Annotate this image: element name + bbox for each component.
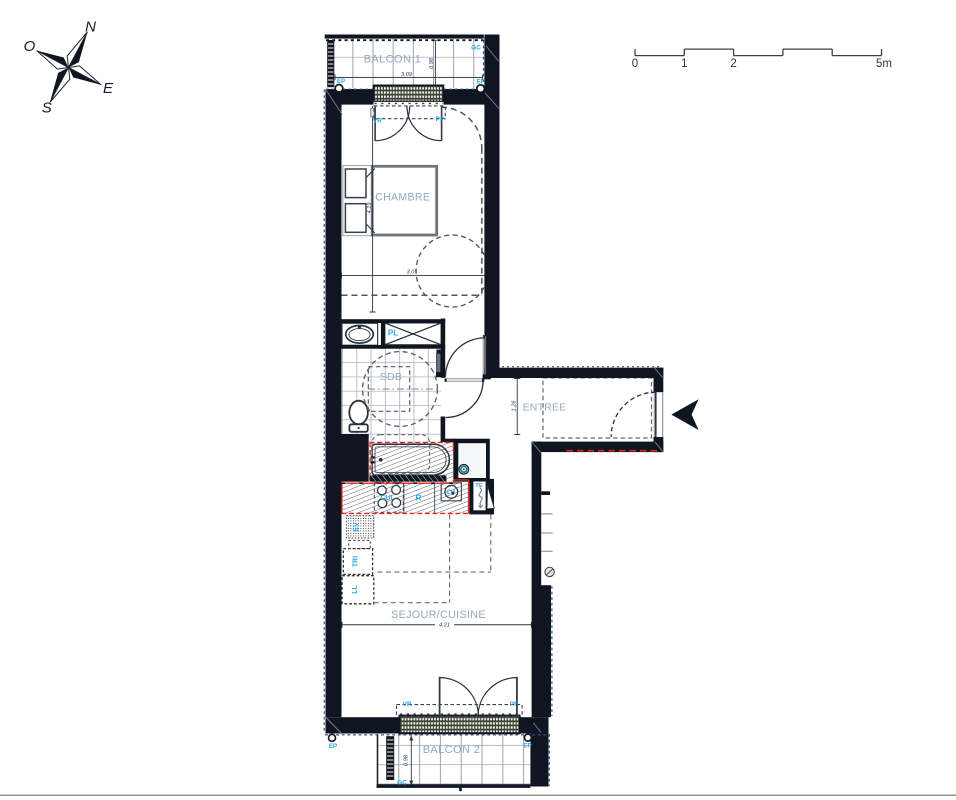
svg-text:4.19: 4.19 (367, 203, 373, 214)
svg-text:0.98: 0.98 (429, 57, 435, 69)
svg-text:EP: EP (337, 78, 345, 85)
svg-text:PP: PP (436, 116, 445, 123)
svg-text:TE: TE (475, 483, 483, 489)
svg-text:O: O (24, 38, 36, 55)
svg-text:3.01: 3.01 (407, 270, 418, 276)
svg-text:2: 2 (730, 58, 736, 70)
svg-text:LL: LL (352, 585, 359, 594)
svg-text:1.26: 1.26 (511, 400, 517, 412)
svg-text:4.21: 4.21 (439, 622, 450, 628)
svg-text:1: 1 (681, 58, 687, 70)
svg-text:3.09: 3.09 (401, 72, 412, 78)
svg-text:GC: GC (471, 44, 481, 51)
svg-text:VR: VR (402, 701, 411, 708)
svg-text:N: N (85, 19, 96, 36)
svg-text:CUI: CUI (380, 495, 392, 502)
svg-text:5m: 5m (876, 58, 892, 70)
svg-text:EP: EP (329, 743, 337, 750)
svg-text:SDB: SDB (380, 371, 403, 383)
svg-text:SEJOUR/CUISINE: SEJOUR/CUISINE (391, 609, 486, 621)
svg-text:R: R (415, 493, 421, 503)
svg-text:TRI: TRI (353, 556, 360, 567)
svg-text:EP: EP (523, 743, 531, 750)
svg-text:CHAMBRE: CHAMBRE (375, 192, 430, 204)
svg-text:PF: PF (510, 701, 518, 708)
svg-text:CH: CH (446, 490, 455, 496)
svg-text:VR: VR (373, 118, 382, 125)
svg-text:E: E (103, 80, 114, 97)
svg-text:0.98: 0.98 (404, 754, 410, 766)
svg-text:ENTRÉE: ENTRÉE (523, 400, 567, 413)
svg-text:PL: PL (388, 329, 398, 338)
svg-text:0: 0 (632, 58, 638, 70)
svg-text:BALCON 2: BALCON 2 (423, 744, 481, 756)
svg-text:S: S (42, 100, 52, 117)
svg-text:BALCON 1: BALCON 1 (364, 53, 422, 65)
svg-text:EV: EV (353, 522, 360, 532)
svg-text:GC: GC (397, 779, 407, 786)
svg-text:EP: EP (476, 78, 484, 85)
